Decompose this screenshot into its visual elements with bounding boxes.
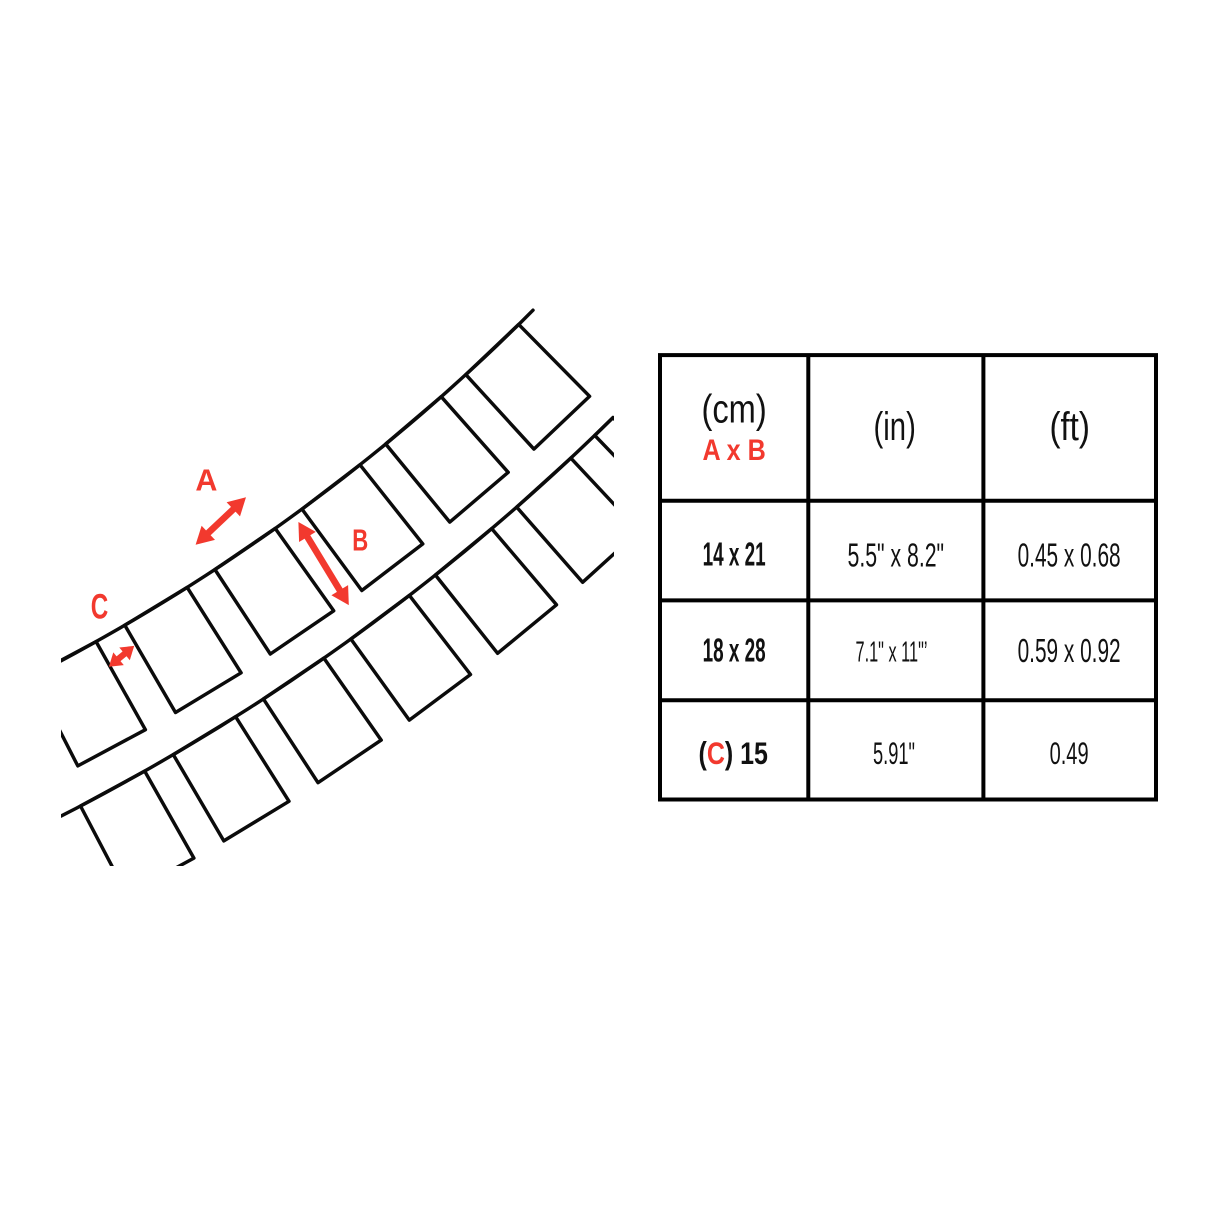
svg-text:(C) 15: (C) 15: [699, 735, 768, 771]
svg-text:0.45 x 0.68: 0.45 x 0.68: [1018, 537, 1121, 574]
svg-text:A: A: [195, 463, 217, 497]
svg-text:0.49: 0.49: [1050, 735, 1089, 771]
svg-text:(in): (in): [874, 405, 916, 449]
svg-text:A x B: A x B: [702, 434, 765, 467]
svg-text:5.5" x 8.2": 5.5" x 8.2": [848, 537, 945, 574]
svg-text:7.1" x 11"’: 7.1" x 11"’: [856, 637, 928, 669]
svg-text:(ft): (ft): [1049, 405, 1090, 449]
svg-text:(cm): (cm): [702, 388, 767, 432]
svg-text:18 x 28: 18 x 28: [703, 632, 766, 669]
svg-text:5.91": 5.91": [873, 735, 915, 771]
svg-text:14 x 21: 14 x 21: [703, 536, 766, 573]
svg-text:B: B: [352, 524, 368, 558]
svg-text:0.59 x 0.92: 0.59 x 0.92: [1018, 632, 1121, 669]
svg-text:C: C: [91, 587, 109, 626]
